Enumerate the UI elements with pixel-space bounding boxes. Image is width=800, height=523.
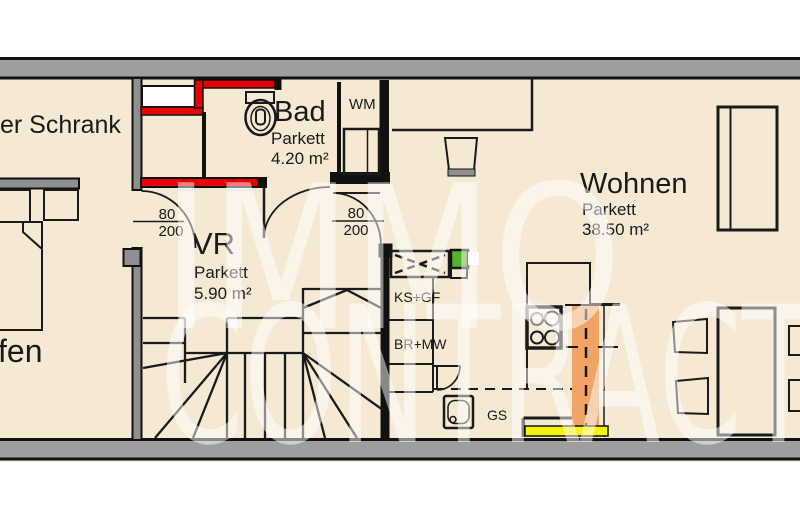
floorplan-canvas: 80 200 80 200 <box>0 0 800 523</box>
watermark-line2: CONTRACT <box>160 266 800 487</box>
exterior-wall-top <box>0 59 800 79</box>
room-label-schrank: er Schrank <box>0 111 121 139</box>
shaft-window <box>142 86 195 107</box>
door-post-left <box>124 249 141 266</box>
wall-bedroom-vr-lower <box>133 248 142 440</box>
red-wall-shaft-right <box>195 80 204 108</box>
wall-stub-bad-top <box>275 78 282 90</box>
room-label-schlafen: fen <box>0 333 42 369</box>
floorplan: 80 200 80 200 <box>0 0 800 523</box>
red-wall-shaft-bottom <box>141 107 203 115</box>
label-washing-machine: WM <box>349 96 376 113</box>
wall-schrank <box>0 179 79 189</box>
wall-bedroom-vr-upper <box>133 78 142 190</box>
bad-name: Bad <box>274 96 326 128</box>
red-wall-bad-top <box>203 80 275 88</box>
